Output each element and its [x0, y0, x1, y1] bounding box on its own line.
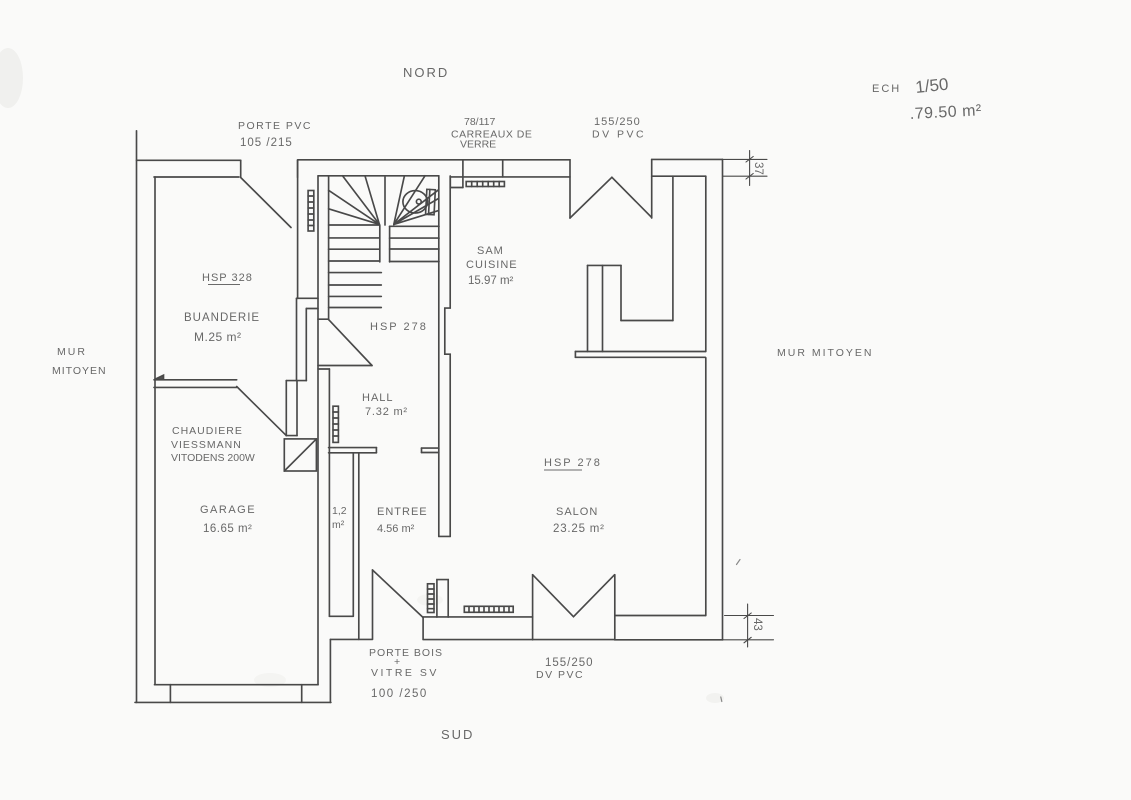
- svg-text:MITOYEN: MITOYEN: [52, 365, 107, 377]
- svg-text:78/117: 78/117: [464, 116, 495, 128]
- svg-text:M.25 m²: M.25 m²: [194, 330, 242, 344]
- svg-text:NORD: NORD: [403, 65, 449, 80]
- svg-text:PORTE BOIS: PORTE BOIS: [369, 647, 443, 659]
- svg-text:DV PVC: DV PVC: [536, 669, 584, 681]
- svg-text:GARAGE: GARAGE: [200, 504, 256, 516]
- svg-text:SAM: SAM: [477, 245, 504, 257]
- svg-text:37: 37: [752, 162, 764, 175]
- svg-text:MUR: MUR: [57, 346, 87, 358]
- svg-text:HSP 278: HSP 278: [370, 321, 428, 333]
- svg-text:100 /250: 100 /250: [371, 688, 428, 700]
- svg-text:PORTE PVC: PORTE PVC: [238, 120, 312, 132]
- svg-text:VERRE: VERRE: [460, 139, 496, 151]
- svg-text:SUD: SUD: [441, 727, 474, 742]
- svg-text:15.97 m²: 15.97 m²: [468, 275, 514, 287]
- svg-text:HSP 278: HSP 278: [544, 457, 602, 469]
- svg-text:ECH: ECH: [872, 83, 901, 95]
- svg-text:CUISINE: CUISINE: [466, 259, 518, 271]
- svg-text:155/250: 155/250: [594, 116, 641, 128]
- svg-text:CHAUDIERE: CHAUDIERE: [172, 425, 243, 437]
- svg-text:VITRE SV: VITRE SV: [371, 667, 439, 679]
- svg-text:SALON: SALON: [556, 506, 598, 518]
- svg-text:1/50: 1/50: [914, 75, 949, 97]
- svg-text:43: 43: [751, 618, 763, 631]
- svg-text:VIESSMANN: VIESSMANN: [171, 439, 242, 451]
- svg-text:1,2: 1,2: [332, 505, 347, 517]
- svg-text:MUR MITOYEN: MUR MITOYEN: [777, 347, 873, 359]
- svg-text:HALL: HALL: [362, 392, 394, 404]
- svg-text:DV PVC: DV PVC: [592, 129, 646, 141]
- svg-text:7.32 m²: 7.32 m²: [365, 406, 408, 418]
- svg-text:HSP 328: HSP 328: [202, 272, 253, 284]
- svg-text:23.25 m²: 23.25 m²: [553, 523, 605, 535]
- svg-text:m²: m²: [332, 519, 345, 531]
- svg-text:155/250: 155/250: [545, 657, 594, 669]
- svg-text:ENTREE: ENTREE: [377, 506, 428, 518]
- svg-text:16.65 m²: 16.65 m²: [203, 523, 252, 535]
- svg-text:BUANDERIE: BUANDERIE: [184, 312, 260, 324]
- svg-text:105 /215: 105 /215: [240, 137, 293, 149]
- svg-text:VITODENS 200W: VITODENS 200W: [171, 452, 255, 464]
- svg-text:4.56 m²: 4.56 m²: [377, 523, 415, 535]
